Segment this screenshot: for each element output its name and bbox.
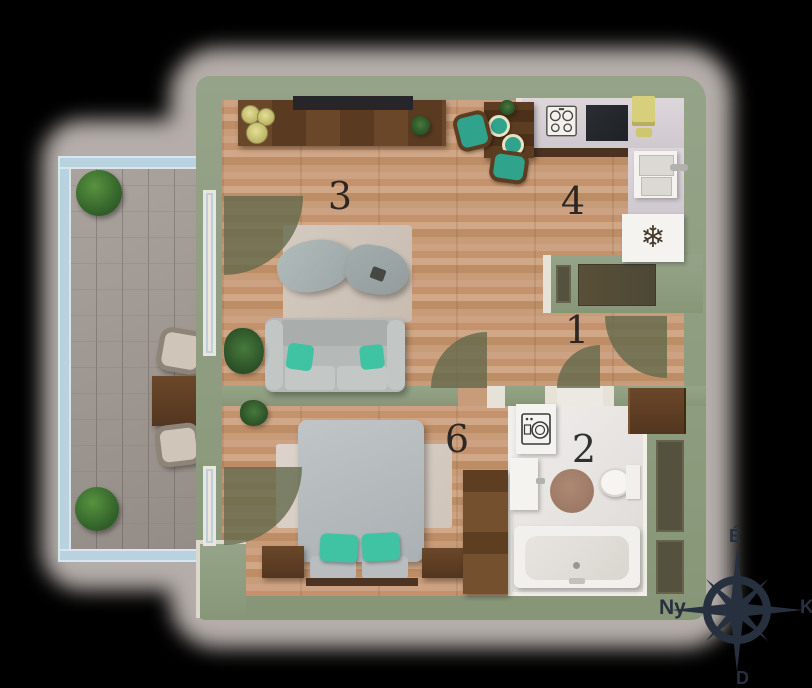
sink-basin-2 bbox=[641, 177, 672, 196]
sofa bbox=[265, 318, 405, 392]
bathtub-faucet bbox=[569, 578, 585, 584]
entry-wall-trim bbox=[543, 255, 551, 313]
bed-pillow-teal-1 bbox=[319, 533, 358, 563]
bath-mat bbox=[550, 469, 594, 513]
nightstand-left bbox=[262, 546, 304, 578]
dining-table-plant bbox=[500, 100, 515, 115]
room-number-bathroom: 2 bbox=[564, 429, 604, 469]
stove-icon bbox=[546, 105, 577, 137]
terrace-railing-bottom bbox=[58, 549, 198, 562]
compass-label-north: É bbox=[729, 526, 741, 547]
toaster bbox=[632, 96, 655, 126]
hallway-wardrobe bbox=[628, 388, 686, 434]
terrace-table bbox=[152, 376, 198, 426]
sofa-back bbox=[281, 320, 389, 346]
sofa-seat-2 bbox=[337, 366, 387, 390]
sofa-pillow-1 bbox=[285, 342, 314, 371]
bathroom-sink bbox=[510, 458, 538, 510]
compass-label-east: K bbox=[800, 597, 812, 619]
sink-faucet bbox=[670, 164, 688, 171]
bedroom-plant bbox=[240, 400, 268, 426]
compass-label-south: D bbox=[736, 668, 749, 688]
room-number-bedroom: 6 bbox=[437, 419, 477, 459]
sofa-armrest-right bbox=[387, 320, 405, 390]
room-number-hallway: 1 bbox=[557, 310, 597, 350]
terrace-railing-left bbox=[58, 156, 71, 562]
room-number-kitchen: 4 bbox=[553, 181, 593, 221]
tv bbox=[293, 96, 413, 110]
wall-trim-jamb-1 bbox=[487, 386, 505, 408]
kitchen-sink bbox=[634, 151, 677, 198]
corner-wall-block bbox=[196, 540, 246, 618]
bed bbox=[298, 420, 424, 586]
entry-door bbox=[578, 264, 656, 306]
bedroom-window bbox=[203, 466, 216, 546]
bedroom-wardrobe bbox=[463, 470, 508, 594]
bathroom-doorway bbox=[557, 386, 603, 406]
bathtub-drain bbox=[573, 562, 580, 569]
washing-machine-icon bbox=[521, 413, 551, 445]
bed-pillow-teal-2 bbox=[361, 532, 400, 562]
cutting-board bbox=[636, 128, 652, 137]
washing-machine bbox=[516, 404, 556, 454]
bathtub bbox=[514, 526, 640, 588]
sideboard-plant bbox=[411, 116, 430, 135]
terrace-bush-top bbox=[76, 170, 122, 216]
sink-basin-1 bbox=[639, 155, 674, 176]
sofa-pillow-2 bbox=[359, 344, 385, 370]
toilet-tank bbox=[626, 465, 640, 499]
closet-upper bbox=[656, 440, 684, 532]
floor-plan-canvas: ❄ bbox=[0, 0, 812, 688]
cooktop bbox=[586, 105, 628, 141]
bathroom-sink-faucet bbox=[536, 478, 545, 484]
terrace-bush-bottom bbox=[75, 487, 119, 531]
counter-cabinet-front bbox=[522, 148, 632, 157]
compass-label-west: Ny bbox=[659, 596, 686, 620]
nightstand-right bbox=[422, 548, 464, 578]
fridge-snowflake-icon: ❄ bbox=[640, 223, 665, 253]
room-number-living: 3 bbox=[320, 176, 360, 216]
sofa-armrest-left bbox=[265, 320, 283, 390]
bedroom-doorway bbox=[458, 386, 487, 406]
decor-plate-3 bbox=[246, 122, 268, 144]
fridge: ❄ bbox=[622, 214, 684, 262]
living-window bbox=[203, 190, 216, 356]
bathtub-basin bbox=[525, 536, 629, 580]
terrace-railing-top bbox=[58, 156, 198, 169]
living-plant bbox=[224, 328, 264, 374]
bed-headboard bbox=[306, 578, 418, 586]
entry-side-panel bbox=[556, 265, 571, 303]
dining-chair-bottom bbox=[488, 149, 530, 186]
wall-trim-jamb-3 bbox=[603, 386, 614, 406]
wall-trim-jamb-2 bbox=[545, 386, 557, 406]
